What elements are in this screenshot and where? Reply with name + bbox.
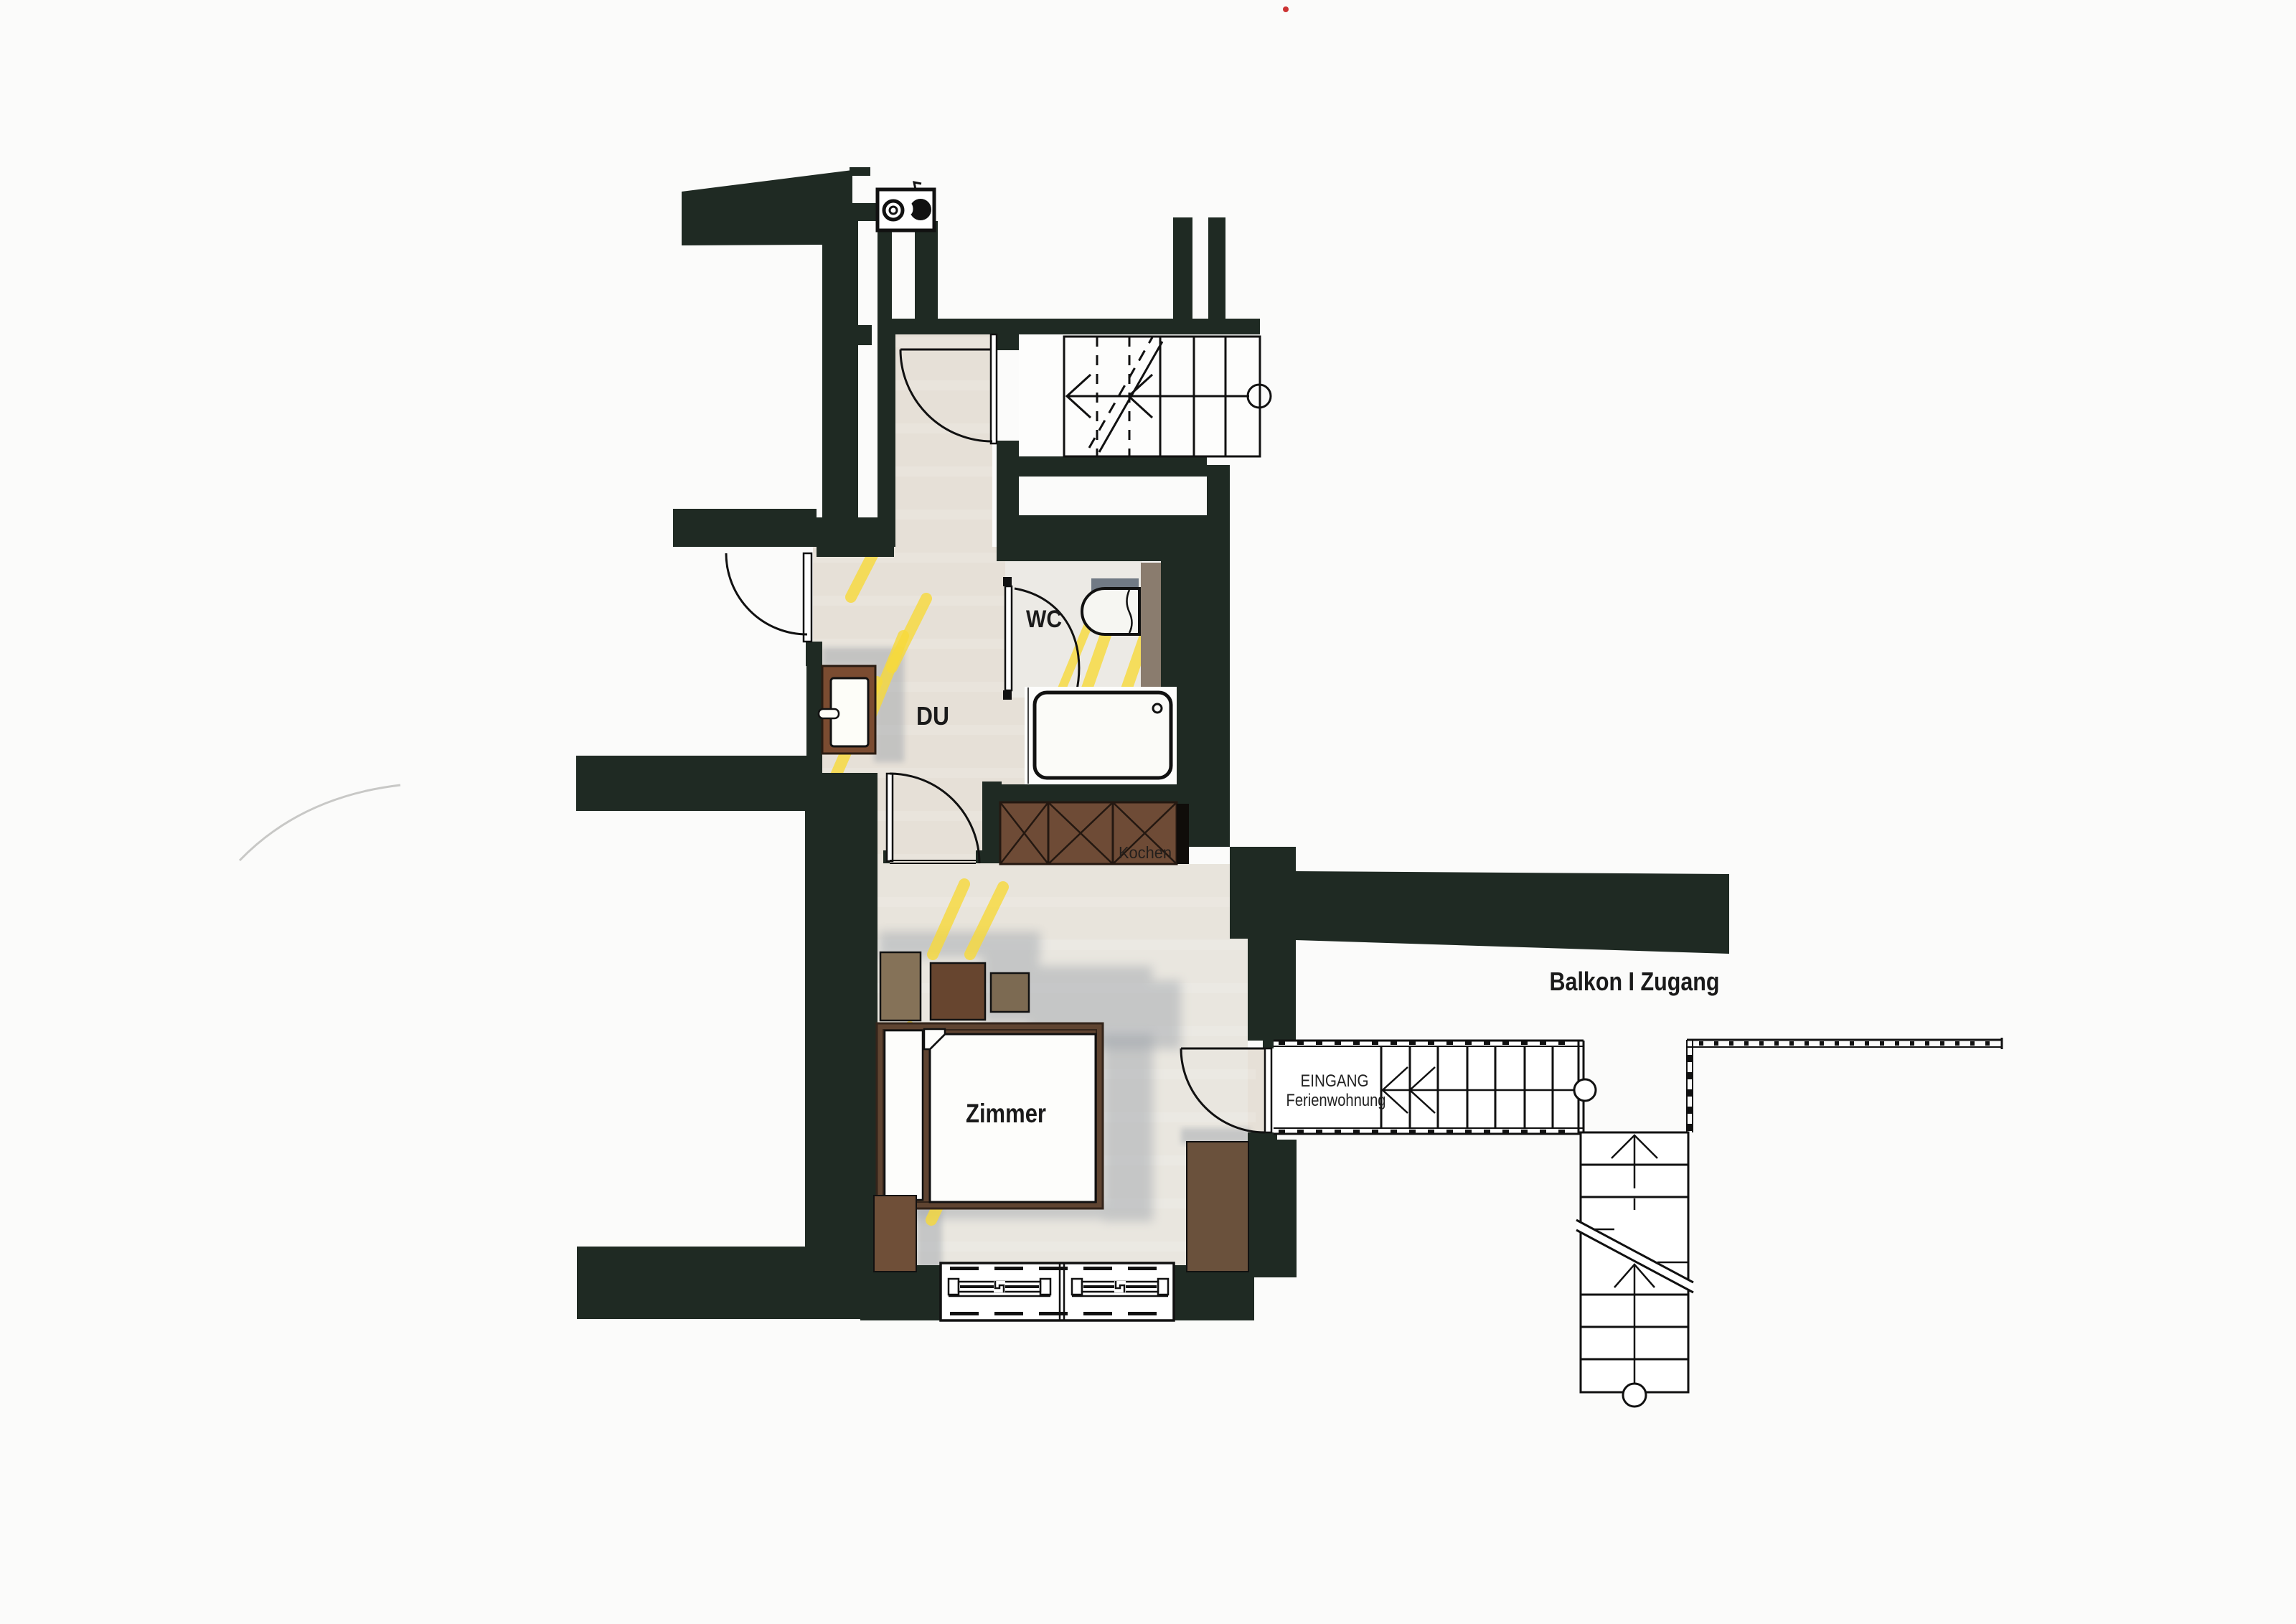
svg-text:Zimmer: Zimmer	[966, 1099, 1046, 1128]
svg-text:Balkon I Zugang: Balkon I Zugang	[1550, 967, 1720, 996]
svg-text:WC: WC	[1026, 606, 1062, 633]
svg-text:Ferienwohnung: Ferienwohnung	[1286, 1091, 1386, 1110]
svg-text:EINGANG: EINGANG	[1301, 1071, 1369, 1091]
svg-text:DU: DU	[916, 701, 949, 731]
svg-text:Kochen: Kochen	[1119, 843, 1172, 862]
